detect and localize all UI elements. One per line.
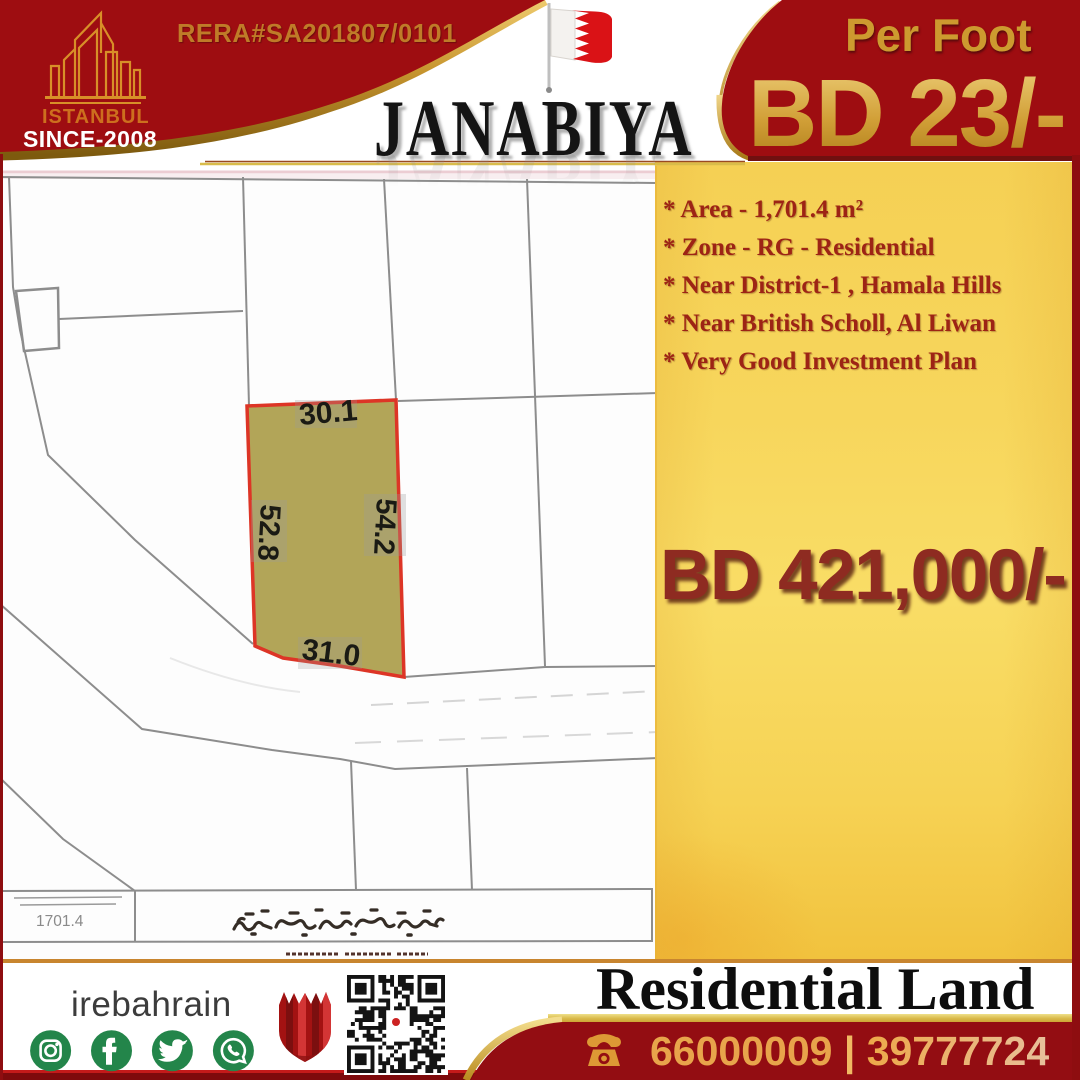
svg-text:54.2: 54.2	[367, 498, 402, 556]
svg-text:1701.4: 1701.4	[36, 913, 84, 930]
svg-text:31.0: 31.0	[300, 633, 362, 673]
svg-text:52.8: 52.8	[251, 504, 286, 562]
svg-text:30.1: 30.1	[298, 394, 359, 432]
